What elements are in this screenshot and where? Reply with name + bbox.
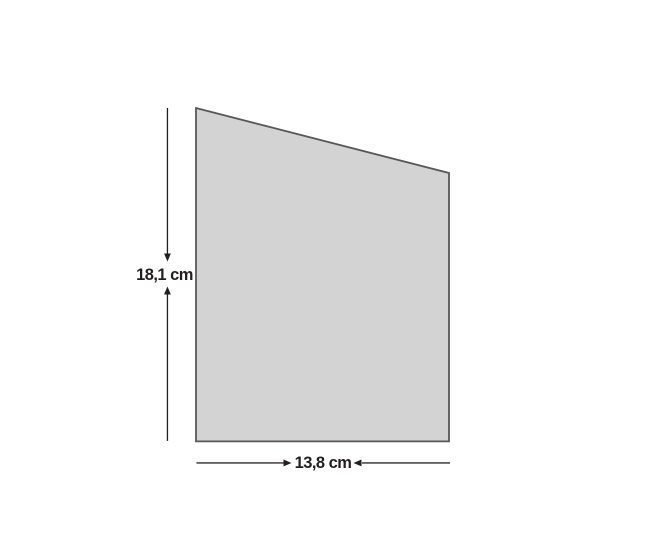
svg-text:18,1 cm: 18,1 cm	[136, 266, 193, 284]
svg-text:13,8 cm: 13,8 cm	[295, 454, 352, 472]
